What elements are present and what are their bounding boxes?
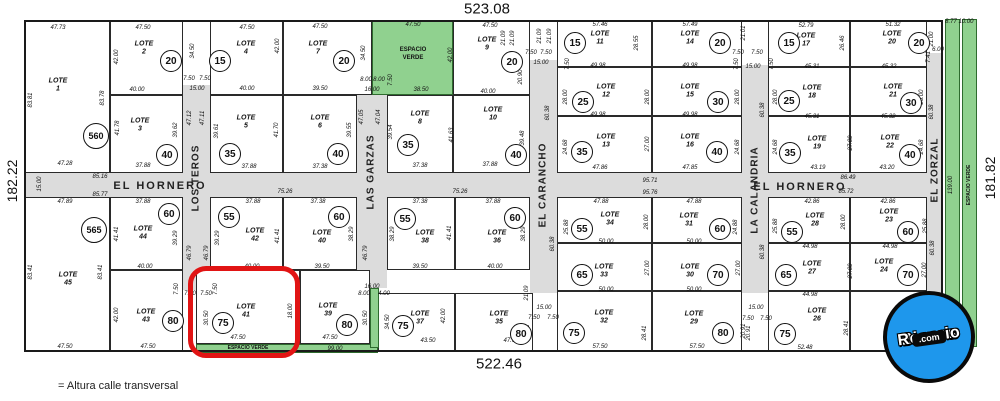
dim-label: 8.77 [945,19,957,25]
lot-height-circle-26: 75 [774,323,796,345]
dim-label: 28.00 [735,89,741,104]
dim-label: 37.88 [245,199,260,205]
dim-label: 45.31 [804,114,819,120]
lot-label-12: LOTE 12 [597,83,616,98]
boundary-dim-top: 523.08 [464,1,510,18]
lot-label-27: LOTE 27 [803,260,822,275]
lot-height-circle-2: 20 [160,50,182,72]
dim-label: 42.86 [880,199,895,205]
lot-height-circle-27: 65 [775,264,797,286]
lot-rect-1 [24,20,110,173]
dim-label: 51.32 [885,22,900,28]
lot-height-circle-18: 25 [778,90,800,112]
dim-label: 7.50 [183,76,195,82]
dim-label: 40.00 [480,89,495,95]
lot-height-circle-34: 55 [571,218,593,240]
lot-height-circle-38: 55 [394,208,416,230]
lot-label-35: LOTE 35 [490,310,509,325]
dim-label: 21.09 [524,285,530,300]
dim-label: 40.00 [244,264,259,270]
dim-label: 47.50 [140,344,155,350]
dim-label: 25.88 [923,218,929,233]
dim-label: 47.73 [50,25,65,31]
lot-height-circle-14: 20 [709,32,731,54]
dim-label: 42.00 [441,308,447,323]
dim-label: 39.29 [173,230,179,245]
dim-label: 21.09 [537,28,543,43]
dim-label: 7.50 [742,316,754,322]
street-name-el-carancho: EL CARANCHO [538,143,549,228]
dim-label: 41.41 [275,228,281,243]
dim-label: 34.50 [190,43,196,58]
dim-label: 41.63 [449,127,455,142]
dim-label: 7.50 [565,58,571,70]
dim-label: 15.00 [189,86,204,92]
lot-label-28: LOTE 28 [806,212,825,227]
dim-label: 47.50 [135,25,150,31]
dim-label: 7.50 [174,283,180,295]
dim-label: 27.00 [922,262,928,277]
legend-text: = Altura calle transversal [58,380,178,392]
dim-label: 37.38 [412,199,427,205]
lot-label-21: LOTE 21 [884,83,903,98]
lot-rect-7 [283,20,372,95]
lot-label-23: LOTE 23 [880,208,899,223]
lot-height-circle-19: 35 [779,142,801,164]
dim-label: 47.50 [230,335,245,341]
dim-label: 21.09 [510,30,516,45]
dim-label: 99.00 [327,346,342,352]
lot-height-circle-41: 75 [212,312,234,334]
street-name-la-calandria: LA CALANDRIA [750,146,761,233]
lot-height-circle-31: 60 [709,218,731,240]
lot-label-42: LOTE 42 [246,227,265,242]
dim-label: 28.00 [645,89,651,104]
lot-label-26: LOTE 26 [808,307,827,322]
dim-label: 38.29 [521,226,527,241]
dim-label: 40.00 [137,264,152,270]
dim-label: 20.91 [741,323,747,338]
dim-label: 37.88 [135,199,150,205]
dim-label: 24.68 [735,139,741,154]
street-name-el-hornero: EL HORNERO [753,181,846,193]
lot-height-circle-13: 35 [571,141,593,163]
lot-label-36: LOTE 36 [488,229,507,244]
lot-height-circle-4: 15 [209,50,231,72]
dim-label: 44.98 [882,244,897,250]
lot-label-41: LOTE 41 [237,303,256,318]
lot-label-45: LOTE 45 [59,271,78,286]
dim-label: 15.00 [748,305,763,311]
dim-label: 7.50 [732,50,744,56]
green-label-espacio-verde-este-2: ESPACIO VERDE [966,165,973,206]
lot-height-circle-20: 20 [908,32,930,54]
lot-label-30: LOTE 30 [681,263,700,278]
lot-height-circle-3: 40 [156,144,178,166]
dim-label: 39.50 [312,86,327,92]
dim-label: 39.50 [412,264,427,270]
dim-label: 37.38 [412,163,427,169]
lot-label-16: LOTE 16 [681,133,700,148]
dim-label: 15.00 [533,60,548,66]
dim-label: 49.98 [590,63,605,69]
dim-label: 30.50 [363,310,369,325]
lot-height-circle-17: 15 [778,32,800,54]
dim-label: 21.09 [547,28,553,43]
dim-label: 57.50 [592,344,607,350]
dim-label: 47.50 [239,25,254,31]
dim-label: 15.00 [745,64,760,70]
dim-label: 7.50 [751,50,763,56]
lot-height-circle-1: 560 [83,123,109,149]
dim-label: 46.79 [363,245,369,260]
lot-label-4: LOTE 4 [237,40,256,55]
dim-label: 37.88 [482,162,497,168]
dim-label: 15.00 [536,305,551,311]
dim-label: 27.00 [645,136,651,151]
dim-label: 60.38 [930,240,936,255]
dim-label: 21.09 [501,30,507,45]
dim-label: 8.00 [360,77,372,83]
lot-label-33: LOTE 33 [595,263,614,278]
lot-label-22: LOTE 22 [881,134,900,149]
dim-label: 7.41 [926,51,932,63]
dim-label: 57.46 [592,22,607,28]
dim-label: 60.38 [545,105,551,120]
dim-label: 85.16 [92,174,107,180]
lot-label-11: LOTE 11 [591,30,610,45]
dim-label: 30.50 [204,310,210,325]
dim-label: 83.41 [28,264,34,279]
dim-label: 38.29 [390,226,396,241]
dim-label: 40.00 [487,264,502,270]
dim-label: 16.00 [364,87,379,93]
lot-height-circle-28: 55 [781,221,803,243]
dim-label: 18.00 [288,303,294,318]
dim-label: 47.88 [686,199,701,205]
lot-height-circle-23: 60 [897,221,919,243]
subdivision-plan: 523.08 522.46 182.22 181.82 N° = Altura … [0,0,1000,401]
dim-label: 50.00 [686,287,701,293]
dim-label: 7.50 [760,316,772,322]
dim-label: 40.00 [239,86,254,92]
dim-label: 83.41 [98,264,104,279]
dim-label: 47.86 [592,165,607,171]
dim-label: 52.48 [797,345,812,351]
dim-label: 60.38 [929,104,935,119]
dim-label: 47.05 [359,109,365,124]
lot-label-24: LOTE 24 [875,258,894,273]
dim-label: 83.78 [100,90,106,105]
dim-label: 34.50 [385,314,391,329]
dim-label: 75.26 [277,189,292,195]
dim-label: 16.00 [364,284,379,290]
lot-height-circle-39: 80 [336,314,358,336]
dim-label: 25.88 [564,219,570,234]
dim-label: 24.88 [733,219,739,234]
lot-label-43: LOTE 43 [137,308,156,323]
dim-label: 42.00 [275,38,281,53]
dim-label: 7.50 [388,74,394,86]
dim-label: 44.98 [802,292,817,298]
lot-label-38: LOTE 38 [416,229,435,244]
dim-label: 50.00 [686,239,701,245]
lot-height-circle-5: 35 [219,143,241,165]
dim-label: 47.04 [376,109,382,124]
lot-height-circle-16: 40 [706,141,728,163]
dim-label: 10.00 [958,19,973,25]
dim-label: 85.77 [92,192,107,198]
lot-label-8: LOTE 8 [411,110,430,125]
dim-label: 38.50 [413,87,428,93]
dim-label: 25.88 [773,218,779,233]
lot-label-20: LOTE 20 [883,30,902,45]
lot-height-circle-6: 40 [327,143,349,165]
dim-label: 39.48 [520,130,526,145]
boundary-dim-left: 182.22 [4,160,20,203]
lot-label-2: LOTE 2 [135,40,154,55]
dim-label: 39.29 [215,230,221,245]
dim-label: 45.32 [881,64,896,70]
dim-label: 44.98 [802,244,817,250]
dim-label: 52.79 [798,23,813,29]
dim-label: 7.50 [525,50,537,56]
lot-label-7: LOTE 7 [309,40,328,55]
dim-label: 47.50 [405,22,420,28]
lot-label-14: LOTE 14 [681,30,700,45]
dim-label: 46.79 [204,245,210,260]
dim-label: 60.38 [550,236,556,251]
dim-label: 27.00 [848,135,854,150]
dim-label: 37.38 [312,164,327,170]
dim-label: 47.85 [682,165,697,171]
dim-label: 21.01 [741,25,747,40]
boundary-dim-bottom: 522.46 [476,356,522,373]
dim-label: 24.68 [563,139,569,154]
dim-label: 26.46 [840,35,846,50]
dim-label: 57.49 [682,22,697,28]
dim-label: 46.79 [187,245,193,260]
lot-height-circle-37: 75 [392,315,414,337]
lot-label-15: LOTE 15 [681,83,700,98]
dim-label: 7.50 [213,283,219,295]
lot-height-circle-11: 15 [564,32,586,54]
lot-height-circle-43: 80 [162,310,184,332]
dim-label: 45.31 [804,64,819,70]
lot-height-circle-10: 40 [505,144,527,166]
dim-label: 47.89 [57,199,72,205]
dim-label: 27.00 [645,260,651,275]
dim-label: 47.12 [187,110,193,125]
dim-label: 39.62 [173,122,179,137]
dim-label: 40.00 [129,87,144,93]
dim-label: 28.00 [644,214,650,229]
dim-label: 43.19 [810,165,825,171]
dim-label: 41.41 [447,225,453,240]
lot-label-5: LOTE 5 [237,114,256,129]
dim-label: 37.88 [135,163,150,169]
dim-label: 60.38 [760,244,766,259]
lot-label-1: LOTE 1 [49,77,68,92]
dim-label: 95.71 [642,178,657,184]
dim-label: 39.61 [214,123,220,138]
lot-label-44: LOTE 44 [134,225,153,240]
lot-label-6: LOTE 6 [311,114,330,129]
dim-label: 42.86 [804,199,819,205]
lot-height-circle-7: 20 [333,50,355,72]
dim-label: 75.26 [452,189,467,195]
lot-height-circle-29: 80 [712,322,734,344]
dim-label: 43.20 [879,165,894,171]
dim-label: 42.00 [114,307,120,322]
dim-label: 8.00 [373,77,385,83]
dim-label: 4.00 [378,291,390,297]
dim-label: 39.50 [314,264,329,270]
dim-label: 28.00 [841,214,847,229]
lot-height-circle-40: 60 [328,206,350,228]
dim-label: 15.00 [37,176,43,191]
green-label-espacio-verde-norte: ESPACIO VERDE [400,47,427,63]
dim-label: 47.50 [312,24,327,30]
lot-height-circle-42: 55 [218,206,240,228]
dim-label: 39.55 [347,122,353,137]
dim-label: 28.41 [642,325,648,340]
street-name-el-zorzal: EL ZORZAL [930,138,941,203]
lot-label-9: LOTE 9 [478,36,497,51]
lot-height-circle-8: 35 [397,134,419,156]
lot-height-circle-12: 25 [572,91,594,113]
dim-label: 83.81 [28,92,34,107]
dim-label: 42.00 [448,47,454,62]
dim-label: 28.00 [563,89,569,104]
lot-height-circle-24: 70 [897,264,919,286]
lot-label-39: LOTE 39 [319,302,338,317]
dim-label: 27.00 [736,260,742,275]
lot-height-circle-33: 65 [571,264,593,286]
lot-height-circle-22: 40 [899,144,921,166]
lot-label-3: LOTE 3 [131,117,150,132]
dim-label: 7.50 [200,291,212,297]
dim-label: 20.90 [518,69,524,84]
dim-label: 47.11 [200,111,206,126]
dim-label: 49.98 [590,112,605,118]
dim-label: 39.54 [388,124,394,139]
dim-label: 47.50 [482,23,497,29]
lot-label-13: LOTE 13 [597,133,616,148]
dim-label: 8.00 [358,291,370,297]
dim-label: 43.50 [420,338,435,344]
lot-label-29: LOTE 29 [685,310,704,325]
dim-label: 41.70 [274,122,280,137]
lot-height-circle-15: 30 [707,91,729,113]
dim-label: 49.98 [682,63,697,69]
dim-label: 47.28 [57,161,72,167]
dim-label: 57.50 [689,344,704,350]
dim-label: 50.00 [598,287,613,293]
dim-label: 38.29 [349,226,355,241]
street-name-las-garzas: LAS GARZAS [366,135,377,210]
dim-label: 7.50 [540,50,552,56]
dim-label: 60.38 [760,102,766,117]
lot-label-32: LOTE 32 [595,309,614,324]
street-name-los-teros: LOS TEROS [191,145,202,212]
dim-label: 139.00 [948,176,954,194]
dim-label: 95.76 [642,190,657,196]
dim-label: 7.50 [769,58,775,70]
dim-label: 37.88 [241,164,256,170]
lot-height-circle-21: 30 [900,92,922,114]
lot-height-circle-44: 60 [158,203,180,225]
dim-label: 7.50 [547,315,559,321]
dim-label: 34.50 [361,45,367,60]
dim-label: 50.00 [598,239,613,245]
lot-label-31: LOTE 31 [680,212,699,227]
lot-label-34: LOTE 34 [601,211,620,226]
dim-label: 7.50 [734,58,740,70]
dim-label: 6.00 [932,47,944,53]
lot-label-19: LOTE 19 [808,135,827,150]
green-espacio-verde-sur-conector [370,288,379,348]
lot-height-circle-35: 80 [510,323,532,345]
dim-label: 47.50 [57,344,72,350]
dim-label: 7.50 [528,315,540,321]
lot-rect-8 [387,95,453,173]
dim-label: 45.32 [880,114,895,120]
dim-label: 37.88 [485,199,500,205]
lot-height-circle-30: 70 [707,264,729,286]
lot-height-circle-32: 75 [563,322,585,344]
dim-label: 37.38 [310,199,325,205]
lot-label-40: LOTE 40 [313,229,332,244]
lot-height-circle-36: 60 [504,207,526,229]
dim-label: 47.50 [322,335,337,341]
dim-label: 28.41 [844,320,850,335]
dim-label: 41.41 [114,226,120,241]
dim-label: 41.78 [115,120,121,135]
dim-label: 47.88 [593,199,608,205]
lot-height-circle-9: 20 [501,51,523,73]
green-label-espacio-verde-sur: ESPACIO VERDE [228,345,269,352]
dim-label: 7.50 [199,76,211,82]
lot-height-circle-45: 565 [81,217,107,243]
lot-label-18: LOTE 18 [803,84,822,99]
dim-label: 28.55 [634,35,640,50]
dim-label: 27.00 [848,263,854,278]
lot-label-10: LOTE 10 [484,106,503,121]
dim-label: 49.98 [682,112,697,118]
boundary-dim-right: 181.82 [982,157,998,200]
dim-label: 42.00 [114,49,120,64]
dim-label: 7.50 [184,291,196,297]
green-espacio-verde-sur [196,344,378,353]
